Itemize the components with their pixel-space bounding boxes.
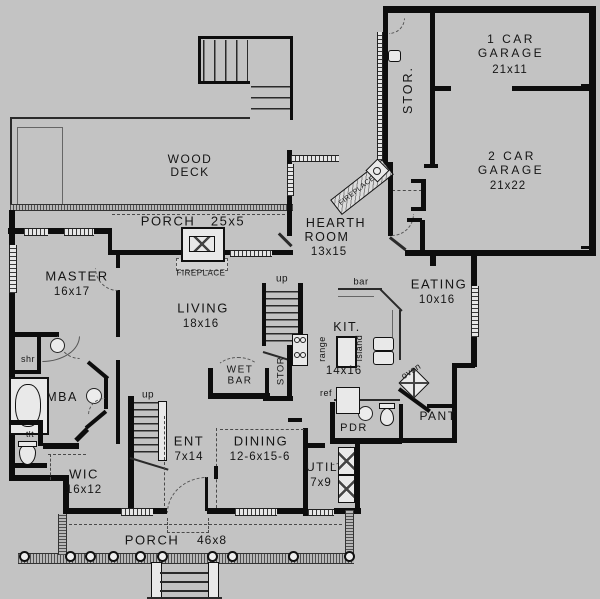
pantry-wall-right <box>452 363 457 443</box>
eating-wall-stub <box>420 220 425 252</box>
dining-ceiling-dashed <box>220 429 304 430</box>
deck-stair-rail <box>198 36 292 39</box>
toilet <box>19 444 36 465</box>
entry-stair-rail <box>158 401 167 461</box>
stor-closet-wall <box>265 368 269 396</box>
porch-column <box>288 551 299 562</box>
room-label-wetbar: BAR <box>227 376 252 387</box>
powder-wall <box>330 402 335 443</box>
porch-column <box>207 551 218 562</box>
porch-column <box>135 551 146 562</box>
room-label-master: MASTER <box>45 269 108 284</box>
bar-counter <box>338 288 382 290</box>
kitchen-sink <box>373 351 394 365</box>
front-wall <box>153 508 167 514</box>
burner <box>300 337 306 343</box>
utility-wall-right <box>355 443 360 512</box>
door-jamb-cap <box>411 207 423 211</box>
stairs-up-label: up <box>276 274 288 285</box>
master-window <box>24 228 48 236</box>
room-dims-wic: 16x12 <box>66 484 102 496</box>
bar-counter <box>379 288 402 311</box>
room-label-entry: ENT <box>174 434 205 449</box>
deck-stair-treads <box>251 86 290 118</box>
room-label-shower: shr <box>21 354 35 364</box>
entry-dining-stub <box>214 466 218 479</box>
hearth-window <box>287 164 294 196</box>
burner <box>300 352 306 358</box>
step-tread <box>160 590 208 592</box>
water-heater <box>388 50 401 62</box>
door-leaf <box>74 427 89 442</box>
firebox <box>189 236 215 252</box>
master-wall-right <box>116 360 120 444</box>
entry-dashed <box>164 416 165 506</box>
porch-railing-right <box>345 510 354 556</box>
bar-counter-inner <box>338 296 374 297</box>
room-label-eating: EATING <box>411 277 467 292</box>
fridge-label: ref <box>320 388 332 398</box>
room-label-stor-stairs: STOR <box>276 357 287 385</box>
room-label-kitchen: KIT. <box>333 320 361 334</box>
powder-toilet <box>380 408 394 426</box>
porch-floor-dashed <box>64 524 342 525</box>
deck-stair-rail <box>198 81 250 84</box>
room-label-dining: DINING <box>234 434 289 449</box>
room-dims-2car-garage: 21x22 <box>490 180 526 192</box>
bar-counter <box>399 310 401 360</box>
pantry-wall-bottom <box>397 438 457 443</box>
room-label-pantry: PANT <box>419 409 456 423</box>
step-rail <box>208 562 219 599</box>
garage-wall-right <box>589 6 596 256</box>
pantry-wall-top <box>427 404 455 408</box>
room-label-hearth: ROOM <box>305 230 350 244</box>
deck-stair-treads <box>203 40 248 81</box>
deck-edge <box>10 117 250 119</box>
step-tread <box>160 581 208 583</box>
closet-rod-dashed <box>48 454 86 455</box>
powder-sink <box>358 406 373 421</box>
room-label-1car-garage: 1 CAR <box>487 32 535 46</box>
deck-step-line <box>17 127 18 204</box>
deck-step-line <box>62 127 63 204</box>
hearth-wall-left <box>287 196 292 236</box>
master-wall-right <box>116 250 120 268</box>
utility-wall-top <box>303 443 325 448</box>
room-label-2car-garage: 2 CAR <box>488 149 536 163</box>
door-leaf <box>389 236 406 250</box>
fireplace-flue-circle <box>373 167 381 175</box>
room-dims-master: 16x17 <box>54 286 90 298</box>
porch-column <box>227 551 238 562</box>
room-label-porch-upper: PORCH <box>141 214 195 229</box>
master-window <box>64 228 94 236</box>
entry-stair-treads <box>134 402 158 457</box>
bar-label: bar <box>353 277 368 288</box>
closet-rod-dashed <box>50 454 51 480</box>
room-dims-1car-garage: 21x11 <box>492 64 527 76</box>
powder-wall-bottom <box>330 438 402 444</box>
front-wall <box>207 508 235 514</box>
shower-wall <box>37 336 41 374</box>
porch-edge-hatch <box>10 204 293 211</box>
room-label-wood-deck: DECK <box>170 165 209 179</box>
front-window <box>235 508 277 516</box>
room-dims-porch-lower: 46x8 <box>197 533 227 547</box>
utility-door-window <box>308 509 334 516</box>
room-label-living: LIVING <box>177 301 229 316</box>
porch-column <box>19 551 30 562</box>
wic-wall-top <box>43 443 79 449</box>
porch-column <box>85 551 96 562</box>
room-label-wetbar: WET <box>227 365 254 376</box>
front-wall <box>277 508 305 514</box>
island-label: island <box>354 335 364 362</box>
room-dims-eating: 10x16 <box>419 294 455 306</box>
stairs-up-label: up <box>142 390 154 401</box>
eating-wall-stub <box>430 256 436 266</box>
room-label-wood-deck: WOOD <box>168 152 213 166</box>
hearth-window-top <box>291 155 339 162</box>
room-dims-hearth: 13x15 <box>311 246 347 258</box>
garage-door-tick <box>581 84 589 87</box>
step-tread <box>160 572 208 574</box>
powder-toilet-tank <box>379 403 395 409</box>
deck-stair-rail <box>198 36 201 84</box>
room-dims-entry: 7x14 <box>175 451 204 463</box>
front-wall <box>63 508 121 514</box>
door-swing-arc <box>389 18 405 34</box>
floor-plan: WOOD DECK PORCH 25x5 1 CAR GARAGE 21x11 … <box>0 0 600 599</box>
fridge-box <box>336 387 360 414</box>
master-wall-right <box>116 290 120 337</box>
kitchen-sink <box>373 337 394 351</box>
dryer <box>338 475 355 503</box>
eating-wall-cap <box>407 218 422 222</box>
eating-window <box>471 286 479 337</box>
room-dims-porch-upper: 25x5 <box>211 214 245 229</box>
room-label-storage-garage: STOR. <box>401 66 415 114</box>
vanity-sink <box>50 338 65 353</box>
garage-wall-top <box>383 6 596 13</box>
storage-wall-cap <box>424 164 438 168</box>
deck-stair-rail <box>290 36 293 120</box>
wetbar-wall-bottom <box>208 393 270 399</box>
living-window <box>230 250 272 257</box>
toilet-tank <box>18 441 37 447</box>
deck-edge <box>10 117 12 205</box>
porch-floor-dashed <box>112 214 290 215</box>
room-label-wic: WIC <box>69 467 99 482</box>
wall-jog <box>9 475 69 481</box>
room-label-hearth: HEARTH <box>306 216 366 230</box>
room-dims-living: 18x16 <box>183 318 219 330</box>
porch-column <box>157 551 168 562</box>
porch-column <box>65 551 76 562</box>
room-dims-dining: 12-6x15-6 <box>230 451 291 463</box>
garage-door-tick <box>581 246 589 249</box>
powder-pantry-divider <box>399 404 403 440</box>
room-label-porch-lower: PORCH <box>125 533 179 548</box>
room-label-mba: MBA <box>46 390 78 404</box>
fireplace-label: FIREPLACE <box>177 269 226 278</box>
door-jamb-cap <box>411 179 423 183</box>
storage-wall <box>430 13 435 168</box>
room-label-powder: PDR <box>340 422 368 434</box>
garage-opening-dashed <box>392 190 422 191</box>
front-window <box>121 508 153 516</box>
room-dims-utility: 7x9 <box>310 477 332 489</box>
porch-railing-left <box>58 514 67 555</box>
garage-divider-wall <box>512 86 590 91</box>
front-door-swing <box>167 477 207 513</box>
room-label-utility: UTIL <box>306 460 338 474</box>
range-label: range <box>317 336 327 362</box>
eating-wall-right <box>471 256 477 286</box>
shower-wall <box>9 370 41 374</box>
room-label-toilet: tlt <box>26 429 34 439</box>
room-dims-kitchen: 14x16 <box>326 365 362 377</box>
storage-window <box>377 32 383 160</box>
room-label-1car-garage: GARAGE <box>478 46 544 60</box>
kitchen-dining-stub <box>288 418 302 422</box>
room-label-2car-garage: GARAGE <box>478 163 544 177</box>
storage-wall <box>383 13 388 169</box>
front-stoop-dashed <box>167 518 209 533</box>
washer <box>338 447 355 475</box>
wetbar-wall <box>208 368 213 396</box>
master-window <box>9 245 17 293</box>
deck-step-line <box>17 127 63 128</box>
porch-column <box>344 551 355 562</box>
porch-column <box>108 551 119 562</box>
